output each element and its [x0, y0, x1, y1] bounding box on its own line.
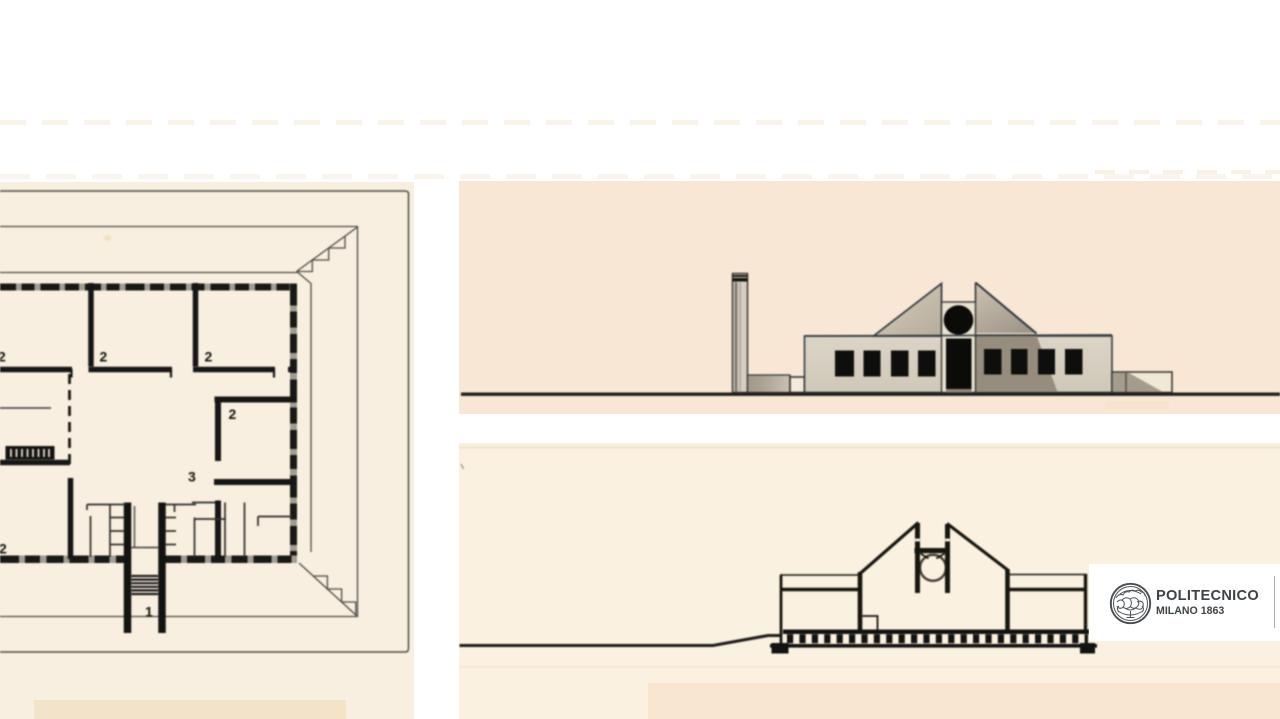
- svg-text:2: 2: [0, 349, 6, 365]
- svg-text:2: 2: [0, 541, 7, 557]
- svg-text:1: 1: [145, 604, 153, 620]
- svg-text:2: 2: [229, 406, 237, 422]
- svg-text:2: 2: [100, 349, 108, 365]
- svg-text:3: 3: [188, 469, 196, 485]
- svg-text:2: 2: [205, 349, 213, 365]
